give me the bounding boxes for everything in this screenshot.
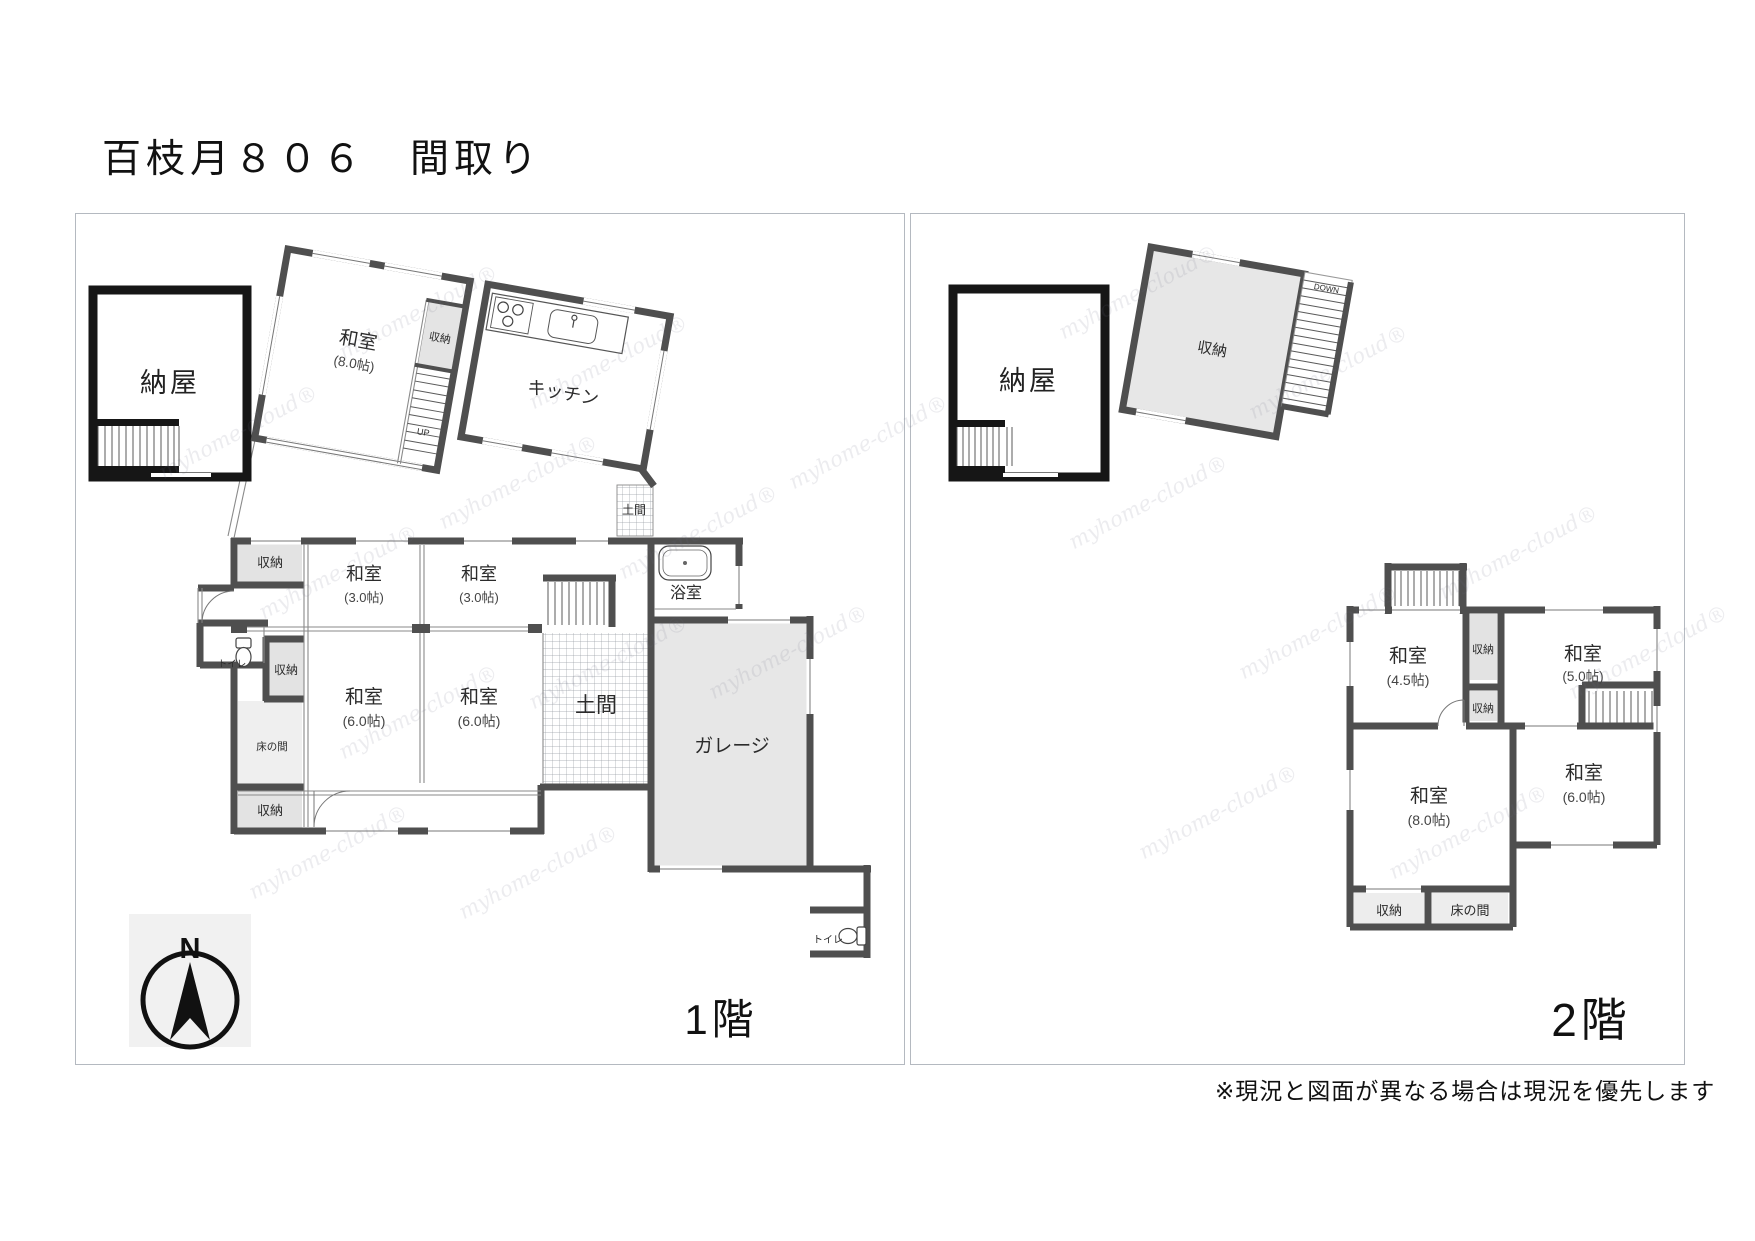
floor2-drawing: 納屋 DOWN 収納 <box>911 214 1684 1064</box>
room-label-garage: ガレージ <box>694 735 770 757</box>
room-label-tokonoma2: 床の間 <box>1450 903 1489 918</box>
room-size-washitsu45: (4.5帖) <box>1387 672 1430 688</box>
room-label-washitsu3b: 和室 <box>461 564 497 584</box>
room-label-shuno-mid: 収納 <box>257 555 283 570</box>
page-title: 百枝月８０６ 間取り <box>102 128 542 184</box>
floor1-label: 1階 <box>684 996 757 1043</box>
room-label-shuno-bottom: 収納 <box>257 803 283 818</box>
room-label-bath: 浴室 <box>670 584 702 602</box>
room-label-washitsu50: 和室 <box>1564 643 1602 665</box>
room-size-washitsu6b: (6.0帖) <box>458 713 501 729</box>
room-size-washitsu3b: (3.0帖) <box>459 590 499 605</box>
stair-1f <box>548 582 604 625</box>
naya-2f: 納屋 <box>953 289 1105 477</box>
stair-bump-2f <box>1395 571 1459 606</box>
naya-1f: 納屋 <box>93 290 247 477</box>
walls-2f <box>1350 563 1657 927</box>
room-label-washitsu6a: 和室 <box>345 686 383 708</box>
stair-inner-2f <box>1589 691 1652 723</box>
room-label-shuno-a: 収納 <box>1472 643 1494 656</box>
room-label-washitsu3a: 和室 <box>346 564 382 584</box>
door-2f-arc <box>1438 700 1464 726</box>
room-label-toilet-left: トイレ <box>218 659 247 670</box>
room-label-washitsu80: 和室 <box>1410 785 1448 807</box>
bathtub-icon <box>659 546 711 580</box>
room-label-naya2: 納屋 <box>999 366 1059 396</box>
floor2-label: 2階 <box>1551 994 1631 1046</box>
room-label-shuno-toilet: 収納 <box>274 663 298 677</box>
toilet-right-icon <box>839 927 866 945</box>
stair-label-up: UP <box>416 426 430 438</box>
room-label-doma-small: 土間 <box>622 503 646 517</box>
room-label-washitsu6b: 和室 <box>460 686 498 708</box>
disclaimer-note: ※現況と図面が異なる場合は現況を優先します <box>1215 1072 1715 1106</box>
room-size-washitsu50: (5.0帖) <box>1562 669 1603 684</box>
floorplan-page: 百枝月８０６ 間取り <box>0 0 1755 1241</box>
room-label-shuno-b: 収納 <box>1472 702 1494 715</box>
room-size-washitsu6a: (6.0帖) <box>343 713 386 729</box>
room-label-washitsu60: 和室 <box>1565 762 1603 784</box>
room-size-washitsu3a: (3.0帖) <box>344 590 384 605</box>
tilted-block-1f: 収納 UP 和室 (8.0帖) キッチン <box>251 245 675 510</box>
room-label-doma-big: 土間 <box>575 694 617 717</box>
floor1-panel: 納屋 収納 UP 和室 (8.0帖) <box>75 213 905 1065</box>
floor1-drawing: 納屋 収納 UP 和室 (8.0帖) <box>76 214 904 1064</box>
room-label-shuno-c: 収納 <box>1376 903 1402 918</box>
floor2-panel: 納屋 DOWN 収納 <box>910 213 1685 1065</box>
compass: N <box>129 914 251 1047</box>
room-size-washitsu80: (8.0帖) <box>1408 812 1451 828</box>
room-label-tokonoma1: 床の間 <box>256 740 288 753</box>
tilted-shuno-2f: DOWN 収納 <box>1122 244 1353 449</box>
room-label-naya1: 納屋 <box>140 368 200 398</box>
room-label-washitsu45: 和室 <box>1389 645 1427 667</box>
room-size-washitsu60: (6.0帖) <box>1563 789 1606 805</box>
room-label-toilet-right: トイレ <box>813 935 843 946</box>
compass-north-label: N <box>180 933 201 965</box>
